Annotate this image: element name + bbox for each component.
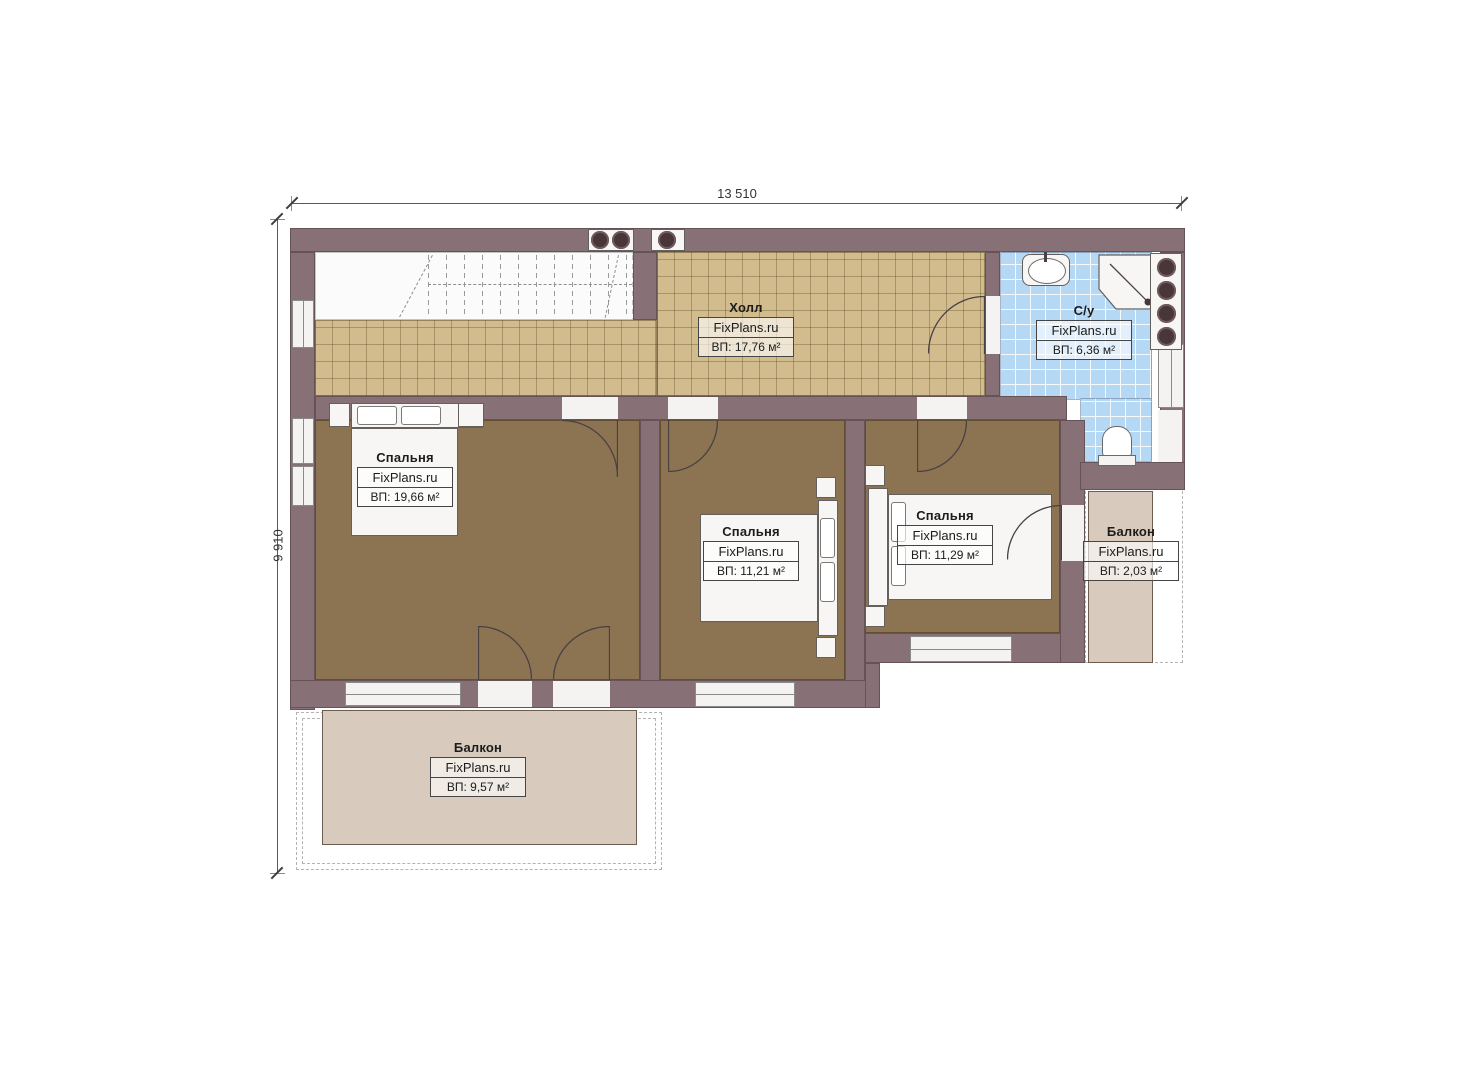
stair-treads bbox=[428, 254, 634, 318]
faucet-icon bbox=[1044, 252, 1047, 262]
room-name: Балкон bbox=[1083, 524, 1179, 539]
door-swing-balcony-right bbox=[1007, 505, 1062, 560]
room-area: ВП: 17,76 м² bbox=[699, 338, 793, 356]
toilet-tank bbox=[1098, 455, 1136, 466]
room-area: ВП: 11,29 м² bbox=[898, 546, 992, 564]
room-card: FixPlans.ru ВП: 19,66 м² bbox=[357, 467, 453, 507]
nightstand bbox=[458, 403, 484, 427]
door-gap-bedroom-middle bbox=[668, 397, 718, 419]
pillow bbox=[820, 518, 835, 558]
window-left-bedroom-1 bbox=[292, 418, 314, 464]
brand-text: FixPlans.ru bbox=[704, 542, 798, 562]
stair-mid-line bbox=[428, 284, 632, 285]
room-area: ВП: 2,03 м² bbox=[1084, 562, 1178, 580]
room-card: FixPlans.ru ВП: 17,76 м² bbox=[698, 317, 794, 357]
nightstand bbox=[816, 477, 836, 498]
brand-text: FixPlans.ru bbox=[1084, 542, 1178, 562]
room-card: FixPlans.ru ВП: 9,57 м² bbox=[430, 757, 526, 797]
nightstand bbox=[816, 637, 836, 658]
brand-text: FixPlans.ru bbox=[898, 526, 992, 546]
door-gap-bathroom-right bbox=[1158, 410, 1182, 462]
room-name: С/у bbox=[1036, 303, 1132, 318]
wall-bedrooms-mid-right bbox=[845, 420, 865, 708]
window-bedroom-middle-bottom bbox=[695, 682, 795, 707]
brand-text: FixPlans.ru bbox=[358, 468, 452, 488]
flue-icon bbox=[1157, 258, 1176, 277]
brand-text: FixPlans.ru bbox=[1037, 321, 1131, 341]
room-name: Спальня bbox=[703, 524, 799, 539]
room-name: Холл bbox=[698, 300, 794, 315]
window-left-bedroom-2 bbox=[292, 466, 314, 506]
door-gap-bathroom bbox=[986, 296, 1000, 354]
wall-step-corner bbox=[865, 663, 880, 708]
shower-icon bbox=[1098, 254, 1156, 310]
room-label-hall: Холл FixPlans.ru ВП: 17,76 м² bbox=[698, 300, 794, 357]
room-card: FixPlans.ru ВП: 11,29 м² bbox=[897, 525, 993, 565]
door-swing-bedroom-right bbox=[917, 420, 967, 472]
room-area: ВП: 11,21 м² bbox=[704, 562, 798, 580]
nightstand bbox=[329, 403, 350, 427]
flue-icon bbox=[612, 231, 630, 249]
wall-top bbox=[290, 228, 1185, 252]
door-gap-balcony-right bbox=[1062, 505, 1084, 561]
dimension-height-label: 9 910 bbox=[271, 506, 286, 586]
pillow bbox=[401, 406, 441, 425]
room-name: Балкон bbox=[430, 740, 526, 755]
bed-headboard bbox=[868, 488, 888, 606]
room-name: Спальня bbox=[897, 508, 993, 523]
room-name: Спальня bbox=[357, 450, 453, 465]
flue-icon bbox=[1157, 327, 1176, 346]
dimension-width-label: 13 510 bbox=[687, 186, 787, 201]
wall-stair-pillar bbox=[633, 252, 657, 320]
room-area: ВП: 9,57 м² bbox=[431, 778, 525, 796]
door-gap-bedroom-right bbox=[917, 397, 967, 419]
door-swing-bedroom-middle bbox=[668, 420, 718, 472]
room-area: ВП: 6,36 м² bbox=[1037, 341, 1131, 359]
room-label-bedroom-middle: Спальня FixPlans.ru ВП: 11,21 м² bbox=[703, 524, 799, 581]
brand-text: FixPlans.ru bbox=[431, 758, 525, 778]
flue-icon bbox=[1157, 304, 1176, 323]
window-right-wall bbox=[1158, 344, 1184, 408]
window-left-hall bbox=[292, 300, 314, 348]
window-bedroom-right-bottom bbox=[910, 636, 1012, 662]
door-gap-balcony-bottom-2 bbox=[553, 681, 610, 707]
door-swing-balcony-bottom-2 bbox=[553, 626, 610, 680]
room-card: FixPlans.ru ВП: 6,36 м² bbox=[1036, 320, 1132, 360]
room-area: ВП: 19,66 м² bbox=[358, 488, 452, 506]
room-label-bedroom-left: Спальня FixPlans.ru ВП: 19,66 м² bbox=[357, 450, 453, 507]
window-bedroom-left-bottom bbox=[345, 682, 461, 706]
sink-basin bbox=[1028, 258, 1066, 284]
room-label-bathroom: С/у FixPlans.ru ВП: 6,36 м² bbox=[1036, 303, 1132, 360]
door-swing-bathroom bbox=[928, 296, 985, 354]
dimension-line-horizontal bbox=[291, 203, 1182, 204]
room-label-bedroom-right: Спальня FixPlans.ru ВП: 11,29 м² bbox=[897, 508, 993, 565]
room-card: FixPlans.ru ВП: 11,21 м² bbox=[703, 541, 799, 581]
flue-icon bbox=[1157, 281, 1176, 300]
floor-plan-canvas: 13 510 9 910 bbox=[0, 0, 1474, 1080]
room-label-balcony-bottom: Балкон FixPlans.ru ВП: 9,57 м² bbox=[430, 740, 526, 797]
nightstand bbox=[865, 606, 885, 627]
door-gap-bedroom-left bbox=[562, 397, 618, 419]
pillow bbox=[820, 562, 835, 602]
flue-icon bbox=[658, 231, 676, 249]
door-swing-balcony-bottom-1 bbox=[478, 626, 532, 680]
wall-bathroom-bottom bbox=[1080, 462, 1185, 490]
brand-text: FixPlans.ru bbox=[699, 318, 793, 338]
wall-bedrooms-left-mid bbox=[640, 420, 660, 708]
hall-floor bbox=[315, 320, 657, 396]
pillow bbox=[357, 406, 397, 425]
door-gap-balcony-bottom-1 bbox=[478, 681, 532, 707]
flue-icon bbox=[591, 231, 609, 249]
room-label-balcony-right: Балкон FixPlans.ru ВП: 2,03 м² bbox=[1083, 524, 1179, 581]
room-card: FixPlans.ru ВП: 2,03 м² bbox=[1083, 541, 1179, 581]
door-swing-bedroom-left bbox=[562, 420, 618, 477]
nightstand bbox=[865, 465, 885, 486]
